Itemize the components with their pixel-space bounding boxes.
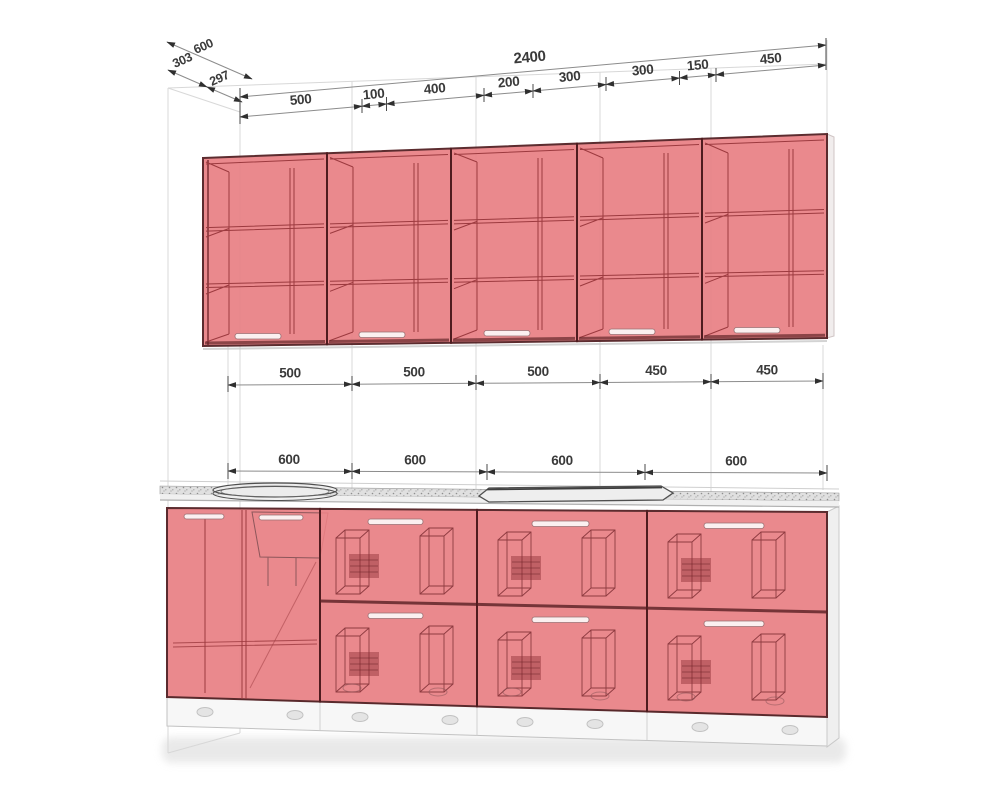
wall-cabinet-5[interactable] [702, 134, 827, 340]
cabinet-handle[interactable] [368, 519, 423, 525]
cabinet-handle[interactable] [368, 613, 423, 619]
dim-label-wall-1: 500 [403, 365, 425, 380]
cabinet-handle[interactable] [734, 328, 780, 334]
cabinet-handle[interactable] [259, 515, 303, 520]
wall-cabinet-1[interactable] [203, 153, 327, 346]
kitchen-drawing-canvas: 600 303 297 2400 500 100 400 200 300 300… [0, 0, 991, 799]
wall-cabinets-row [203, 134, 834, 349]
dim-label-top-0: 500 [289, 91, 312, 108]
dim-label-top-6: 150 [686, 57, 709, 74]
dim-label-top-1: 100 [362, 86, 385, 103]
dim-label-base-0: 600 [278, 452, 300, 467]
dim-label-top-2: 400 [423, 80, 446, 97]
cabinet-handle[interactable] [704, 523, 764, 529]
dim-label-base-2: 600 [551, 453, 573, 468]
dim-label-wall-4: 450 [756, 362, 778, 377]
base-cabinet-1-sink[interactable] [167, 508, 328, 702]
base-cabinet-4-drawers[interactable] [647, 511, 827, 717]
cooktop[interactable] [479, 486, 673, 502]
overall-dimension: 2400 [240, 38, 826, 124]
dim-label-top-3: 200 [497, 74, 520, 91]
base-cabinet-2-drawers[interactable] [320, 509, 477, 707]
cabinet-handle[interactable] [184, 514, 224, 519]
dim-label-top-4: 300 [558, 68, 581, 85]
cabinet-handle[interactable] [532, 617, 589, 623]
cabinet-handle[interactable] [235, 334, 281, 340]
dim-label-wall-0: 500 [279, 366, 301, 381]
base-cabinet-dimension-chain: 600 600 600 600 [228, 452, 827, 481]
dim-label-top-7: 450 [759, 50, 782, 67]
wall-cabinet-2[interactable] [327, 149, 451, 345]
wall-cabinet-4[interactable] [577, 139, 702, 341]
dim-label-total-width: 2400 [513, 48, 547, 68]
base-cabinet-3-drawers[interactable] [477, 510, 647, 712]
cabinet-handle[interactable] [609, 329, 655, 335]
kitchen-elevation-drawing: 600 303 297 2400 500 100 400 200 300 300… [0, 0, 991, 799]
wall-cabinet-3[interactable] [451, 144, 577, 343]
dim-label-base-3: 600 [725, 454, 747, 469]
dim-label-depth-total: 600 [191, 36, 215, 57]
dim-label-wall-3: 450 [645, 363, 667, 378]
dim-label-base-1: 600 [404, 453, 426, 468]
countertop [160, 481, 839, 507]
cabinet-handle[interactable] [484, 331, 530, 337]
wall-cabinet-dimension-chain: 500 500 500 450 450 [228, 362, 823, 392]
dim-label-wall-2: 500 [527, 364, 549, 379]
cabinet-handle[interactable] [532, 521, 589, 527]
cabinet-handle[interactable] [704, 621, 764, 627]
dim-label-top-5: 300 [631, 62, 654, 79]
cabinet-handle[interactable] [359, 332, 405, 338]
